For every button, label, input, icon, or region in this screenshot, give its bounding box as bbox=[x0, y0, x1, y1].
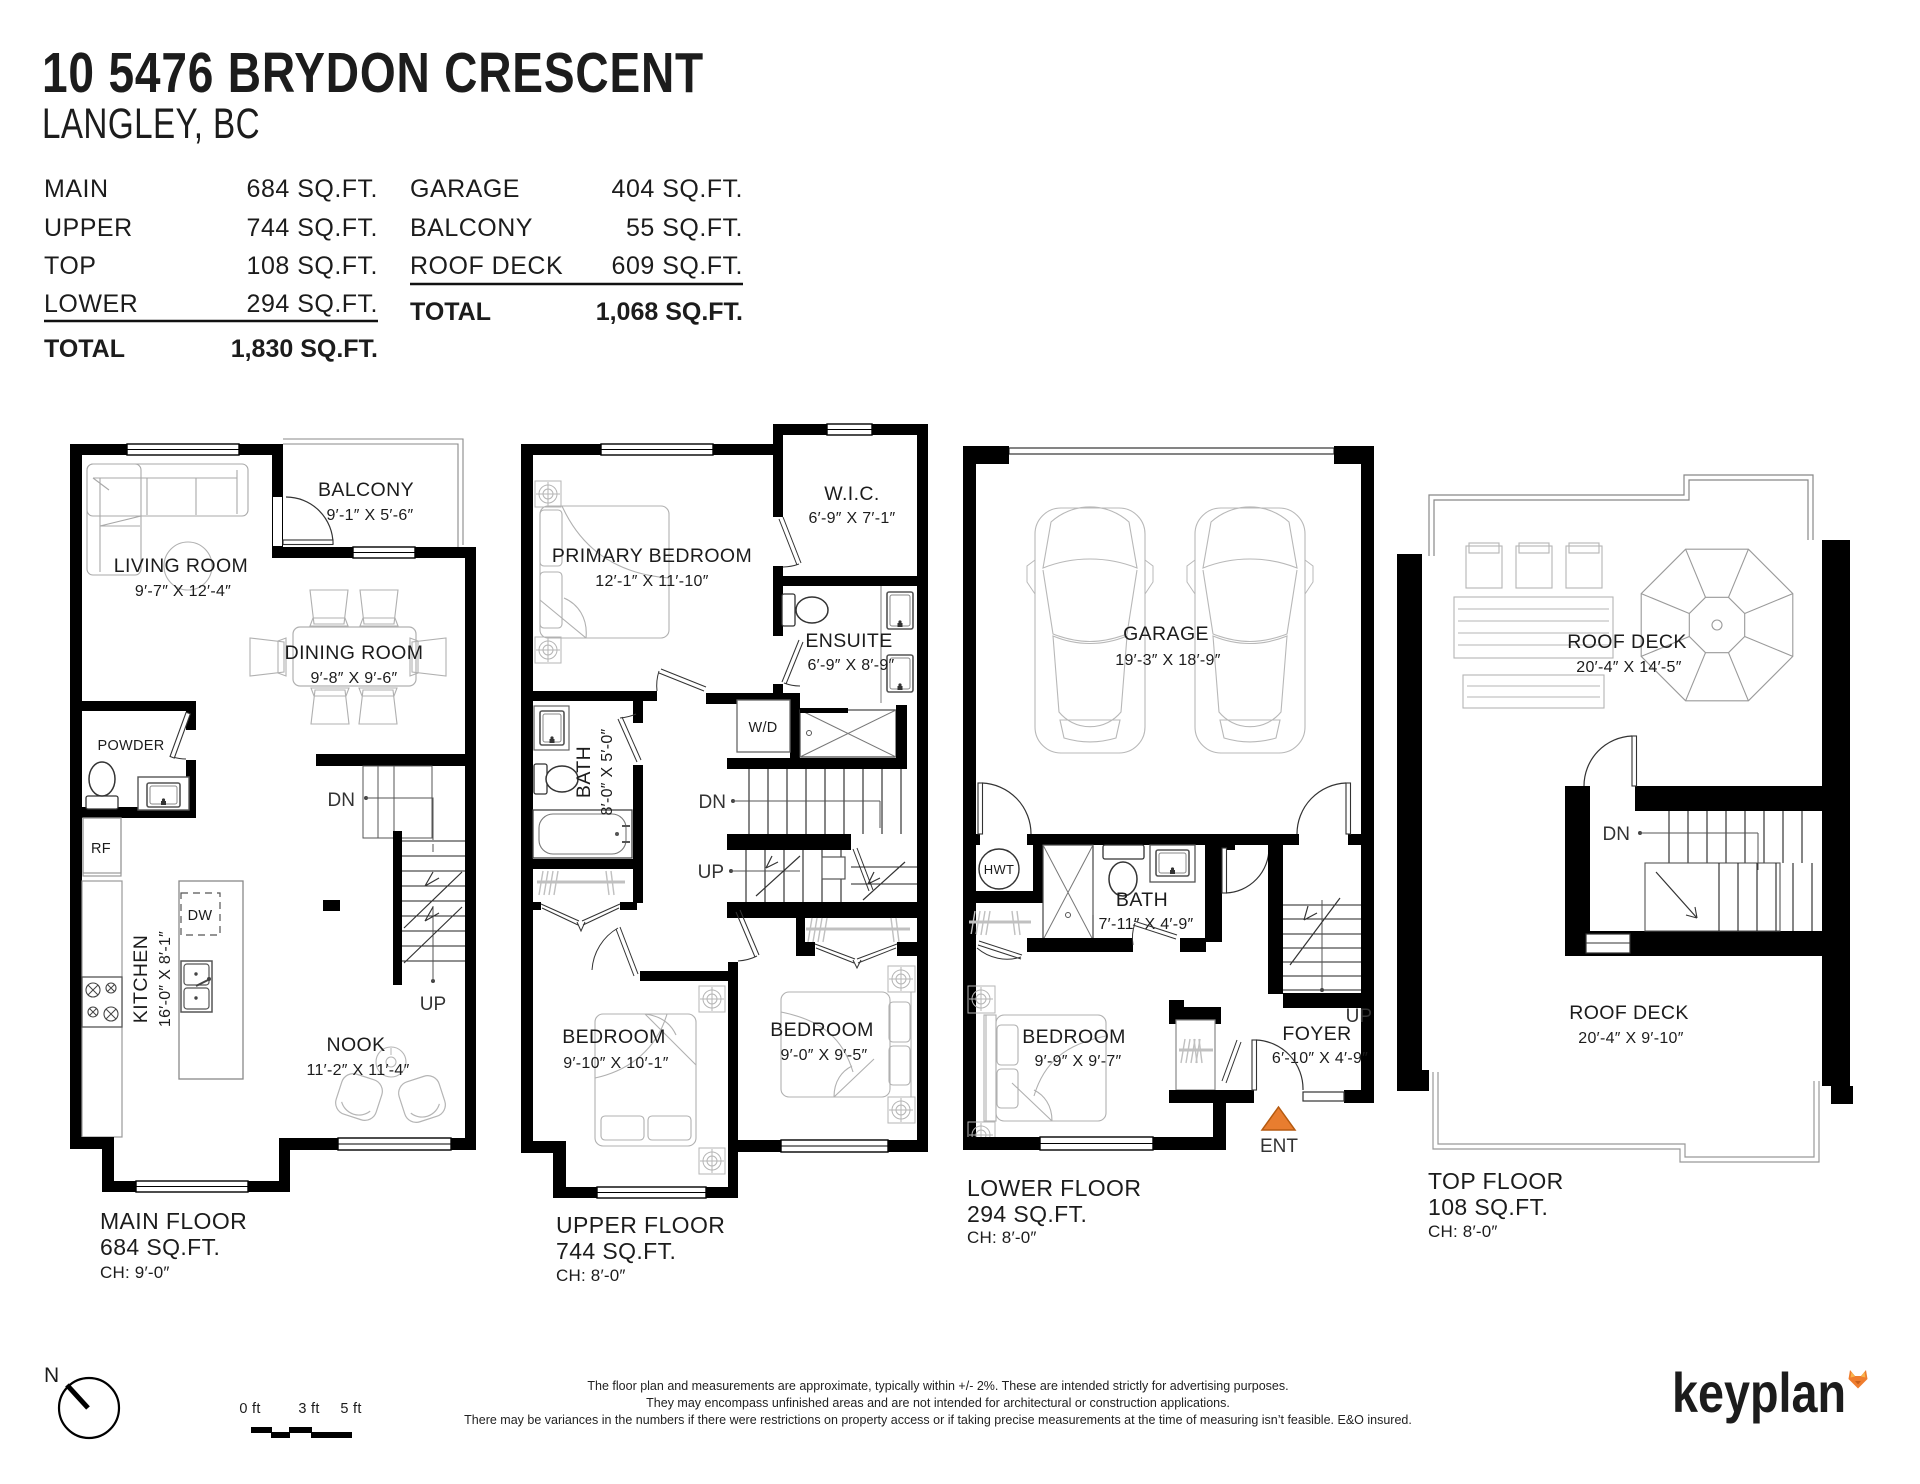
svg-text:ENSUITE: ENSUITE bbox=[805, 630, 892, 652]
svg-text:They may encompass unfinished: They may encompass unfinished areas and … bbox=[646, 1396, 1230, 1410]
svg-text:10 5476 BRYDON CRESCENT: 10 5476 BRYDON CRESCENT bbox=[42, 41, 704, 105]
svg-text:UPPER: UPPER bbox=[44, 214, 133, 242]
svg-text:LIVING ROOM: LIVING ROOM bbox=[114, 555, 248, 577]
svg-text:9′-7″ X 12′-4″: 9′-7″ X 12′-4″ bbox=[135, 583, 231, 600]
svg-text:55 SQ.FT.: 55 SQ.FT. bbox=[626, 214, 743, 242]
svg-text:0 ft: 0 ft bbox=[239, 1401, 260, 1417]
svg-text:5 ft: 5 ft bbox=[340, 1401, 361, 1417]
svg-text:11′-2″ X 11′-4″: 11′-2″ X 11′-4″ bbox=[306, 1062, 409, 1079]
svg-text:UP: UP bbox=[420, 994, 446, 1015]
svg-text:KITCHEN: KITCHEN bbox=[130, 935, 152, 1023]
svg-text:744 SQ.FT.: 744 SQ.FT. bbox=[247, 214, 378, 242]
svg-text:HWT: HWT bbox=[984, 862, 1015, 877]
svg-text:609 SQ.FT.: 609 SQ.FT. bbox=[612, 252, 743, 280]
svg-text:294 SQ.FT.: 294 SQ.FT. bbox=[247, 290, 378, 318]
svg-text:9′-1″ X 5′-6″: 9′-1″ X 5′-6″ bbox=[326, 507, 413, 524]
svg-text:BATH: BATH bbox=[573, 746, 595, 798]
svg-text:GARAGE: GARAGE bbox=[1123, 623, 1209, 645]
svg-text:The floor plan and measurement: The floor plan and measurements are appr… bbox=[587, 1379, 1288, 1393]
svg-text:ROOF DECK: ROOF DECK bbox=[1567, 631, 1687, 653]
svg-text:9′-0″ X 9′-5″: 9′-0″ X 9′-5″ bbox=[780, 1047, 867, 1064]
svg-text:BALCONY: BALCONY bbox=[410, 214, 533, 242]
svg-text:LANGLEY, BC: LANGLEY, BC bbox=[42, 100, 260, 148]
svg-text:BEDROOM: BEDROOM bbox=[562, 1026, 666, 1048]
svg-text:There may be variances in the: There may be variances in the numbers if… bbox=[464, 1413, 1412, 1427]
svg-text:N: N bbox=[44, 1364, 59, 1387]
svg-text:404 SQ.FT.: 404 SQ.FT. bbox=[612, 175, 743, 203]
svg-text:TOP FLOOR: TOP FLOOR bbox=[1428, 1168, 1564, 1194]
svg-text:MAIN: MAIN bbox=[44, 175, 109, 203]
svg-text:108 SQ.FT.: 108 SQ.FT. bbox=[247, 252, 378, 280]
svg-text:744 SQ.FT.: 744 SQ.FT. bbox=[556, 1238, 676, 1264]
svg-text:DINING ROOM: DINING ROOM bbox=[285, 642, 424, 664]
svg-text:DN: DN bbox=[1603, 824, 1630, 845]
svg-text:W.I.C.: W.I.C. bbox=[824, 483, 879, 505]
svg-text:9′-10″ X 10′-1″: 9′-10″ X 10′-1″ bbox=[563, 1055, 668, 1072]
svg-text:BEDROOM: BEDROOM bbox=[1022, 1026, 1126, 1048]
svg-text:20′-4″ X 9′-10″: 20′-4″ X 9′-10″ bbox=[1578, 1030, 1683, 1047]
svg-text:MAIN FLOOR: MAIN FLOOR bbox=[100, 1208, 247, 1234]
svg-text:LOWER: LOWER bbox=[44, 290, 138, 318]
svg-text:BALCONY: BALCONY bbox=[318, 479, 414, 501]
svg-text:ENT: ENT bbox=[1260, 1136, 1298, 1157]
svg-text:POWDER: POWDER bbox=[97, 738, 164, 754]
svg-text:6′-9″ X 8′-9″: 6′-9″ X 8′-9″ bbox=[807, 657, 894, 674]
svg-text:TOP: TOP bbox=[44, 252, 96, 280]
svg-text:RF: RF bbox=[91, 841, 111, 857]
svg-text:CH: 8′-0″: CH: 8′-0″ bbox=[556, 1266, 626, 1285]
svg-text:1,068 SQ.FT.: 1,068 SQ.FT. bbox=[596, 298, 743, 326]
svg-text:294 SQ.FT.: 294 SQ.FT. bbox=[967, 1201, 1087, 1227]
svg-text:BEDROOM: BEDROOM bbox=[770, 1019, 874, 1041]
svg-text:CH: 8′-0″: CH: 8′-0″ bbox=[967, 1228, 1037, 1247]
svg-text:ROOF DECK: ROOF DECK bbox=[410, 252, 563, 280]
svg-text:GARAGE: GARAGE bbox=[410, 175, 520, 203]
svg-text:keyplan: keyplan bbox=[1672, 1361, 1846, 1424]
svg-text:16′-0″ X 8′-1″: 16′-0″ X 8′-1″ bbox=[157, 931, 174, 1027]
svg-text:9′-8″ X 9′-6″: 9′-8″ X 9′-6″ bbox=[310, 670, 397, 687]
svg-text:ROOF DECK: ROOF DECK bbox=[1569, 1002, 1689, 1024]
svg-text:DN: DN bbox=[328, 790, 355, 811]
svg-text:684 SQ.FT.: 684 SQ.FT. bbox=[247, 175, 378, 203]
svg-text:684 SQ.FT.: 684 SQ.FT. bbox=[100, 1234, 220, 1260]
svg-text:TOTAL: TOTAL bbox=[410, 298, 491, 326]
svg-text:PRIMARY BEDROOM: PRIMARY BEDROOM bbox=[552, 545, 752, 567]
svg-text:9′-9″ X 9′-7″: 9′-9″ X 9′-7″ bbox=[1034, 1053, 1121, 1070]
svg-text:1,830 SQ.FT.: 1,830 SQ.FT. bbox=[231, 335, 378, 363]
svg-text:20′-4″ X 14′-5″: 20′-4″ X 14′-5″ bbox=[1576, 659, 1681, 676]
svg-text:DW: DW bbox=[188, 908, 213, 924]
svg-text:NOOK: NOOK bbox=[326, 1034, 385, 1056]
svg-text:FOYER: FOYER bbox=[1282, 1023, 1351, 1045]
svg-text:8′-0″ X 5′-0″: 8′-0″ X 5′-0″ bbox=[599, 728, 616, 815]
svg-text:BATH: BATH bbox=[1116, 889, 1168, 911]
svg-text:UP: UP bbox=[698, 862, 724, 883]
svg-text:3 ft: 3 ft bbox=[298, 1401, 319, 1417]
svg-text:6′-9″ X 7′-1″: 6′-9″ X 7′-1″ bbox=[808, 510, 895, 527]
svg-text:W/D: W/D bbox=[748, 720, 777, 736]
svg-text:TOTAL: TOTAL bbox=[44, 335, 125, 363]
svg-text:CH: 9′-0″: CH: 9′-0″ bbox=[100, 1263, 170, 1282]
svg-text:19′-3″ X 18′-9″: 19′-3″ X 18′-9″ bbox=[1115, 652, 1220, 669]
svg-text:UPPER FLOOR: UPPER FLOOR bbox=[556, 1212, 725, 1238]
svg-text:108 SQ.FT.: 108 SQ.FT. bbox=[1428, 1194, 1548, 1220]
svg-text:DN: DN bbox=[699, 792, 726, 813]
svg-text:12′-1″ X 11′-10″: 12′-1″ X 11′-10″ bbox=[595, 573, 708, 590]
svg-text:LOWER FLOOR: LOWER FLOOR bbox=[967, 1175, 1141, 1201]
svg-text:CH: 8′-0″: CH: 8′-0″ bbox=[1428, 1222, 1498, 1241]
